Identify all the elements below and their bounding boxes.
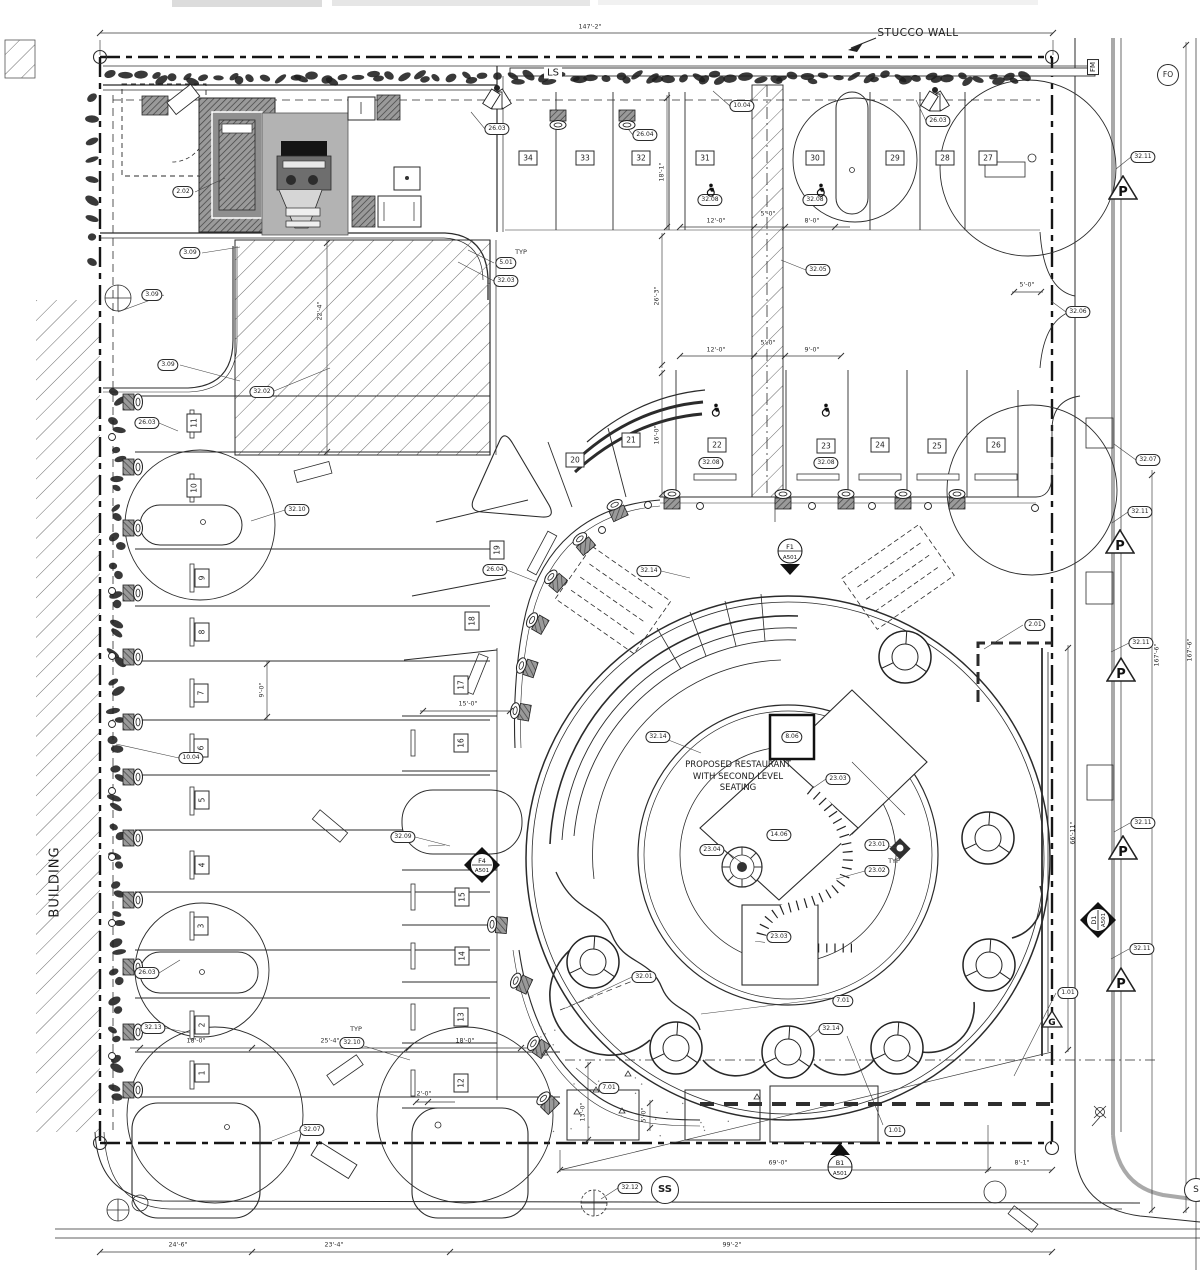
dimension-label: 12'-0" xyxy=(707,347,726,354)
svg-text:G: G xyxy=(1048,1018,1055,1028)
callout-bubble: 32.11 xyxy=(1127,506,1152,518)
stall-number: 5 xyxy=(195,791,210,810)
dimension-label: 18'-0" xyxy=(456,1038,475,1045)
callout-bubble: 26.04 xyxy=(632,129,657,141)
callout-bubble: 23.03 xyxy=(766,931,791,943)
restaurant-note-line1: PROPOSED RESTAURANT xyxy=(657,760,819,772)
restaurant-note-line3: SEATING xyxy=(657,783,819,795)
stucco-wall-label: STUCCO WALL xyxy=(877,27,958,39)
callout-bubble: 26.03 xyxy=(134,967,159,979)
dimension-label: 8'-0" xyxy=(805,218,820,225)
svg-text:F1: F1 xyxy=(786,543,794,551)
callout-bubble: 32.10 xyxy=(284,504,309,516)
stall-number: 1 xyxy=(195,1064,210,1083)
stall-number: 19 xyxy=(490,541,505,560)
stall-number: 23 xyxy=(817,439,836,454)
callout-bubble: 14.06 xyxy=(766,829,791,841)
dimension-label: 18'-1" xyxy=(659,163,666,182)
callout-bubble: 32.07 xyxy=(299,1124,324,1136)
dimension-label: 23'-4" xyxy=(325,1242,344,1249)
stall-number: 30 xyxy=(806,151,825,166)
callout-bubble: 32.08 xyxy=(698,457,723,469)
callout-bubble: 26.04 xyxy=(482,564,507,576)
callout-bubble: 8.06 xyxy=(781,731,802,743)
dimension-label: 5'-0" xyxy=(1020,282,1035,289)
callout-bubble: 7.01 xyxy=(598,1082,619,1094)
dimension-label: 9'-0" xyxy=(805,347,820,354)
svg-text:P: P xyxy=(1116,667,1126,682)
callout-bubble: 32.14 xyxy=(636,565,661,577)
svg-text:B1: B1 xyxy=(836,1159,845,1167)
callout-bubble: 10.04 xyxy=(729,100,754,112)
callout-bubble: 1.01 xyxy=(1057,987,1078,999)
callout-bubble: 1.01 xyxy=(884,1125,905,1137)
callout-bubble: 23.01 xyxy=(864,839,889,851)
svg-text:A501: A501 xyxy=(783,555,797,561)
stall-number: 34 xyxy=(519,151,538,166)
callout-bubble: 32.02 xyxy=(249,386,274,398)
callout-bubble: 32.11 xyxy=(1129,943,1154,955)
svg-text:D1: D1 xyxy=(1090,915,1098,924)
dimension-label: 13'-0" xyxy=(580,1103,587,1122)
callout-bubble: 32.07 xyxy=(1135,454,1160,466)
stall-number: 17 xyxy=(454,676,469,695)
typ-label: TYP xyxy=(515,248,527,256)
callout-bubble: 3.09 xyxy=(157,359,178,371)
stall-number: 24 xyxy=(871,438,890,453)
fm-utility-label: FM xyxy=(1087,59,1099,75)
dimension-label: 2'-0" xyxy=(417,1091,432,1098)
stall-number: 32 xyxy=(632,151,651,166)
stall-number: 9 xyxy=(195,569,210,588)
dimension-label: 147'-2" xyxy=(579,24,602,31)
svg-text:P: P xyxy=(1116,977,1126,992)
callout-bubble: 32.09 xyxy=(390,831,415,843)
dimension-label: 15'-0" xyxy=(459,701,478,708)
dimension-label: 8'-1" xyxy=(1015,1160,1030,1167)
callout-bubble: 23.03 xyxy=(825,773,850,785)
stall-number: 4 xyxy=(195,856,210,875)
callout-bubble: 32.11 xyxy=(1128,637,1153,649)
callout-bubble: 26.03 xyxy=(484,123,509,135)
site-plan-sheet: BUILDING STUCCO WALL LS FM FO SS S PROPO… xyxy=(0,0,1200,1270)
callout-bubble: 10.04 xyxy=(178,752,203,764)
callout-bubble: 2.02 xyxy=(172,186,193,198)
svg-text:A501: A501 xyxy=(1101,913,1107,927)
callout-bubble: 32.11 xyxy=(1130,151,1155,163)
svg-text:A501: A501 xyxy=(475,868,489,874)
dimension-label: 16'-0" xyxy=(654,426,661,445)
stall-number: 11 xyxy=(187,414,202,433)
callout-bubble: 26.03 xyxy=(925,115,950,127)
restaurant-note: PROPOSED RESTAURANT WITH SECOND LEVEL SE… xyxy=(657,760,819,795)
callout-bubble: 32.12 xyxy=(617,1182,642,1194)
callout-bubble: 7.01 xyxy=(832,995,853,1007)
callout-bubble: 32.08 xyxy=(813,457,838,469)
callout-bubble: 32.13 xyxy=(140,1022,165,1034)
dimension-label: 99'-2" xyxy=(723,1242,742,1249)
dimension-label: 167'-6" xyxy=(1187,639,1194,662)
svg-text:P: P xyxy=(1118,845,1128,860)
svg-text:P: P xyxy=(1118,185,1128,200)
dimension-label: 167'-6" xyxy=(1154,644,1161,667)
stall-number: 26 xyxy=(987,438,1006,453)
landscape-strip-label: LS xyxy=(544,68,562,79)
dimension-label: 24'-6" xyxy=(169,1242,188,1249)
dimension-label: 5'-0" xyxy=(761,340,776,347)
stall-number: 7 xyxy=(194,684,209,703)
callout-bubble: 32.11 xyxy=(1130,817,1155,829)
stall-number: 12 xyxy=(454,1074,469,1093)
stall-number: 13 xyxy=(454,1008,469,1027)
callout-bubble: 23.02 xyxy=(864,865,889,877)
stall-number: 15 xyxy=(455,888,470,907)
stall-number: 10 xyxy=(187,479,202,498)
annotation-overlay: BUILDING STUCCO WALL LS FM FO SS S PROPO… xyxy=(0,0,1200,1270)
dimension-label: 12'-0" xyxy=(707,218,726,225)
callout-bubble: 32.10 xyxy=(339,1037,364,1049)
sanitary-sewer-marker: SS xyxy=(651,1176,679,1204)
restaurant-note-line2: WITH SECOND LEVEL xyxy=(657,772,819,784)
stall-number: 28 xyxy=(936,151,955,166)
dimension-label: 5'-0" xyxy=(761,211,776,218)
dimension-label: 22'-4" xyxy=(317,302,324,321)
callout-bubble: 32.03 xyxy=(493,275,518,287)
dimension-label: 5'-0" xyxy=(641,1108,648,1123)
dimension-label: 9'-0" xyxy=(259,683,266,698)
callout-bubble: 23.04 xyxy=(699,844,724,856)
callout-bubble: 3.09 xyxy=(141,289,162,301)
svg-text:F4: F4 xyxy=(478,857,486,865)
callout-bubble: 3.09 xyxy=(179,247,200,259)
building-label: BUILDING xyxy=(48,846,63,917)
stall-number: 2 xyxy=(195,1016,210,1035)
callout-bubble: 32.14 xyxy=(645,731,670,743)
callout-bubble: 32.14 xyxy=(818,1023,843,1035)
stall-number: 25 xyxy=(928,439,947,454)
stall-number: 8 xyxy=(195,623,210,642)
fiber-optic-marker: FO xyxy=(1157,64,1179,86)
svg-text:P: P xyxy=(1115,539,1125,554)
sewer-marker: S xyxy=(1184,1178,1200,1202)
stall-number: 29 xyxy=(886,151,905,166)
typ-label: TYP xyxy=(888,857,900,865)
stall-number: 3 xyxy=(194,917,209,936)
callout-bubble: 32.01 xyxy=(631,971,656,983)
callout-bubble: 2.01 xyxy=(1024,619,1045,631)
stall-number: 14 xyxy=(455,947,470,966)
stall-number: 22 xyxy=(708,438,727,453)
dimension-label: 18'-0" xyxy=(187,1038,206,1045)
svg-text:A501: A501 xyxy=(833,1171,847,1177)
stall-number: 21 xyxy=(622,433,641,448)
dimension-label: 66'-11" xyxy=(1070,822,1077,845)
callout-bubble: 5.01 xyxy=(495,257,516,269)
callout-bubble: 26.03 xyxy=(134,417,159,429)
dimension-label: 26'-3" xyxy=(654,287,661,306)
stall-number: 27 xyxy=(979,151,998,166)
dimension-label: 25'-4" xyxy=(321,1038,340,1045)
stall-number: 16 xyxy=(454,734,469,753)
callout-bubble: 32.06 xyxy=(1065,306,1090,318)
stall-number: 33 xyxy=(576,151,595,166)
callout-bubble: 32.05 xyxy=(805,264,830,276)
stall-number: 31 xyxy=(696,151,715,166)
stall-number: 20 xyxy=(566,453,585,468)
typ-label: TYP xyxy=(350,1025,362,1033)
dimension-label: 69'-0" xyxy=(769,1160,788,1167)
stall-number: 18 xyxy=(465,612,480,631)
